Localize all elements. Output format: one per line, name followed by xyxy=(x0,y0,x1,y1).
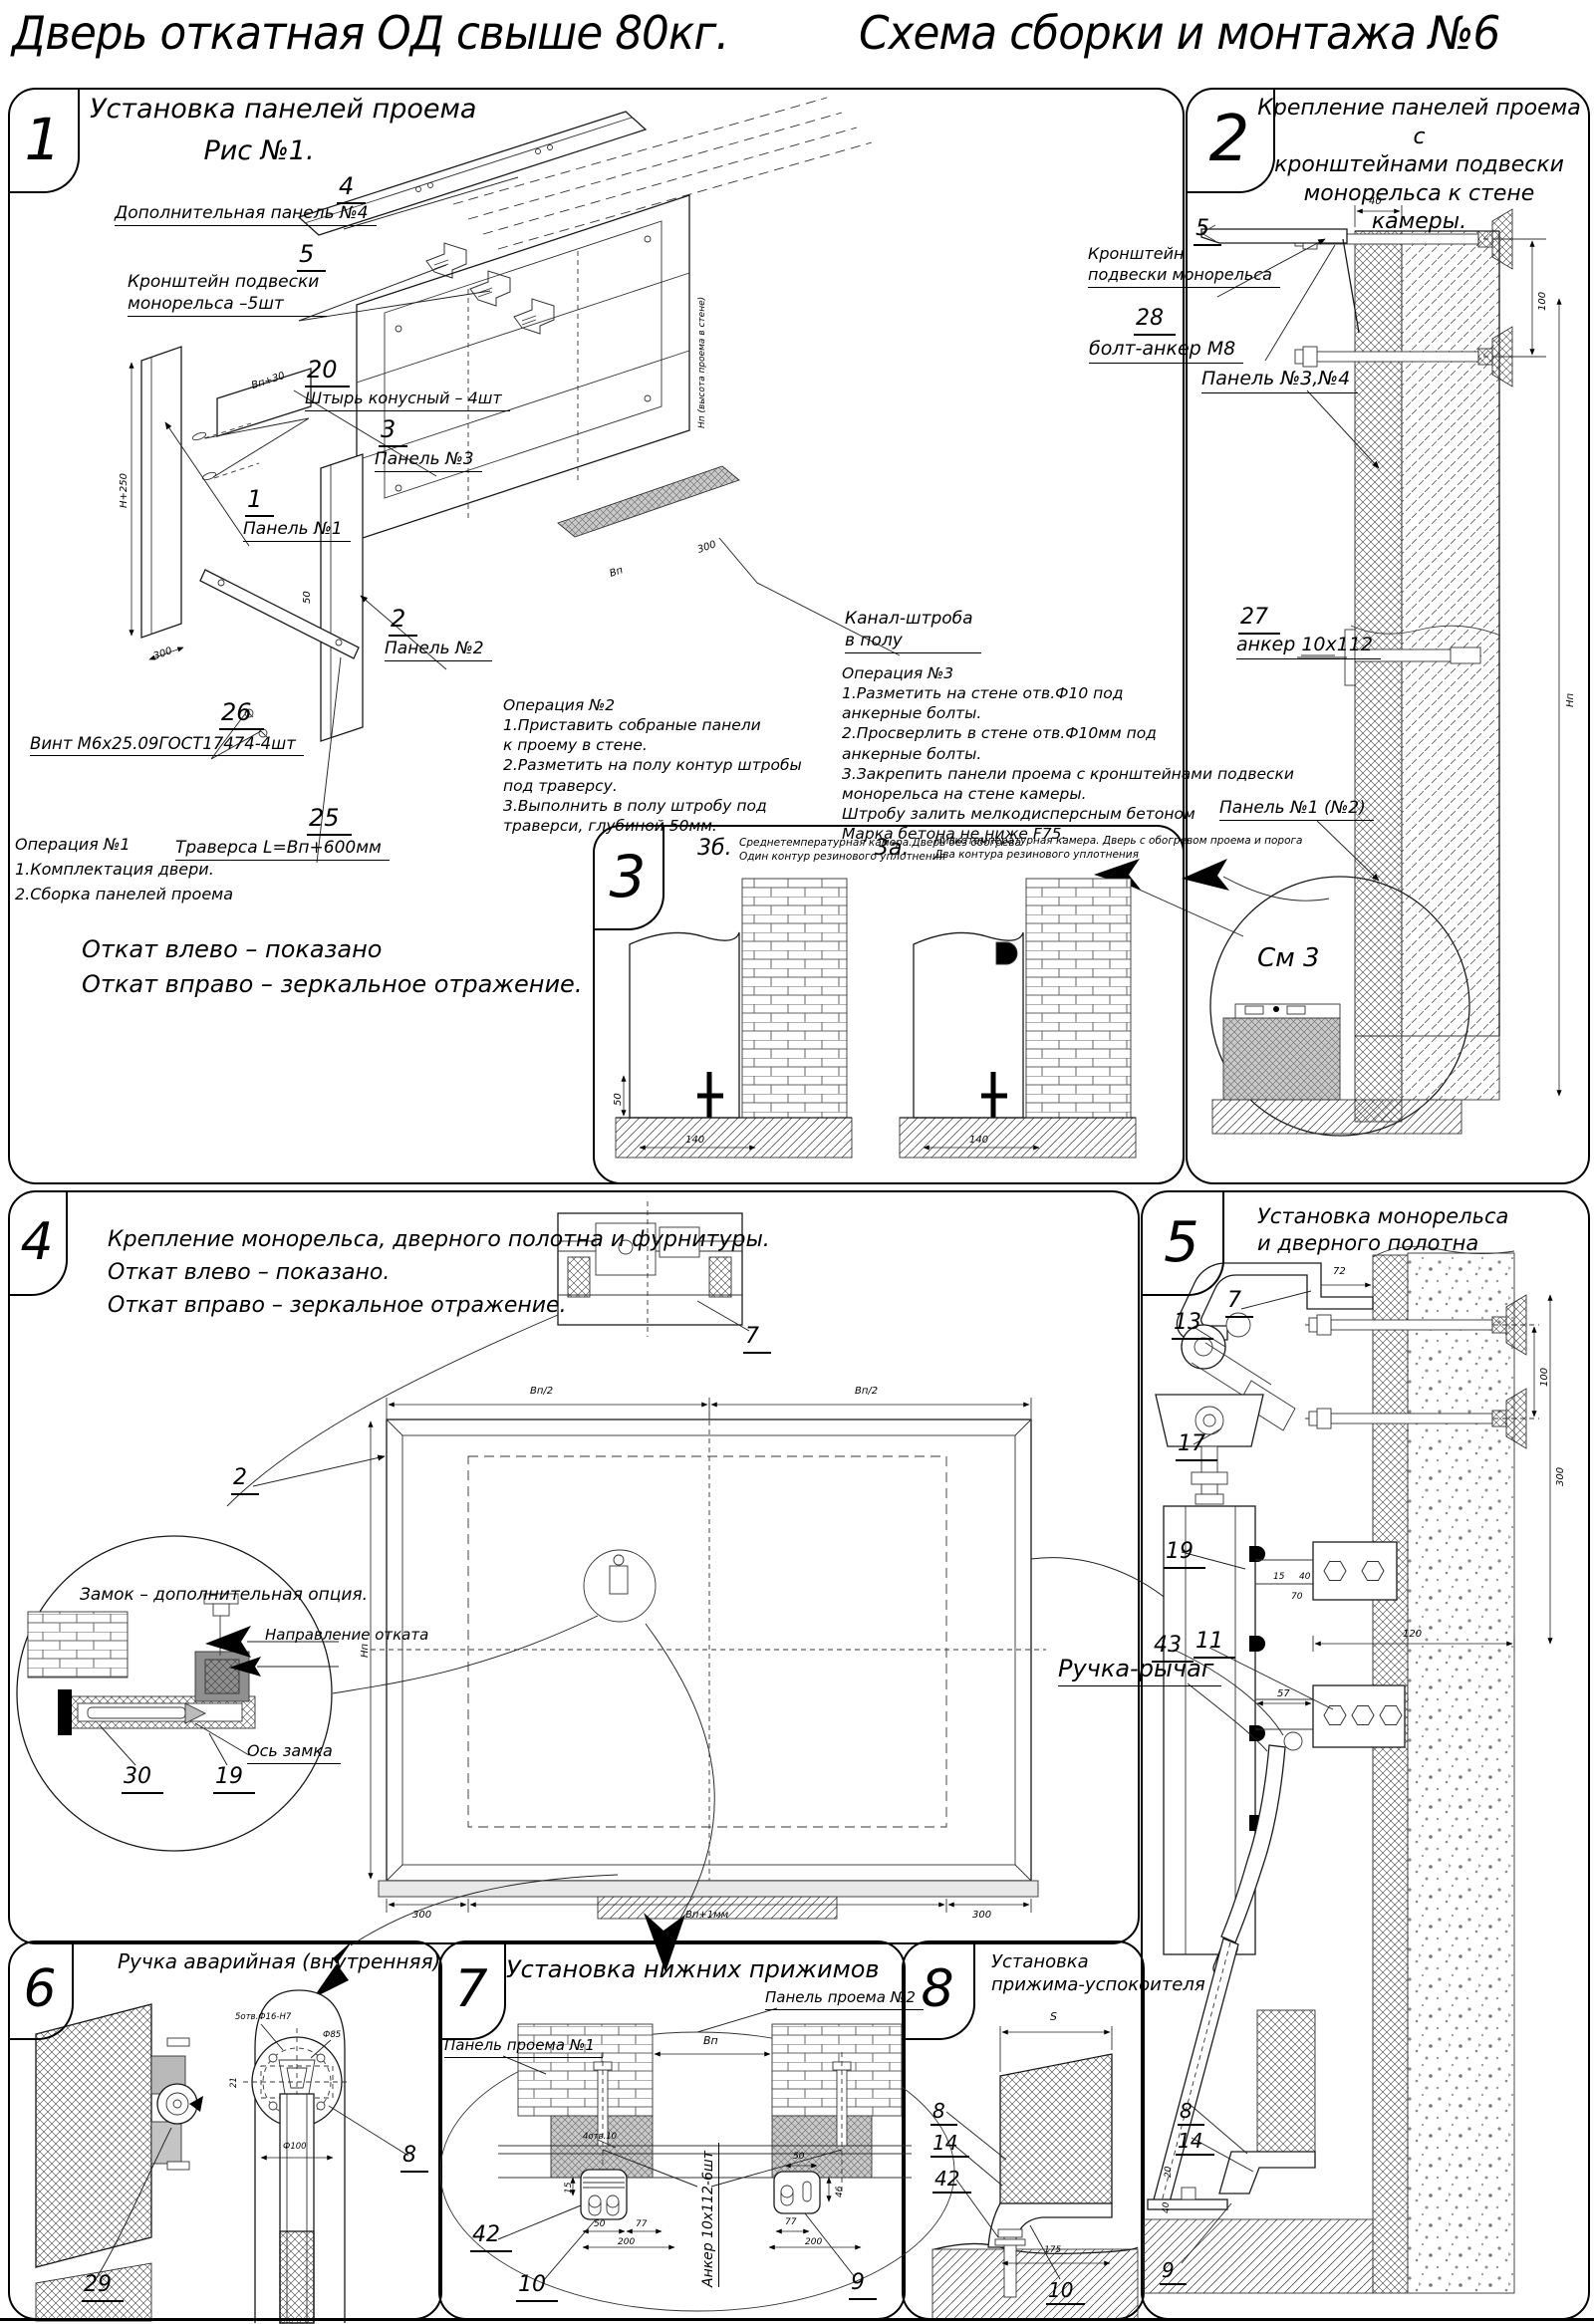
p7-dim-77-left: 77 xyxy=(636,2219,647,2231)
p1-pos-5: 5 xyxy=(297,239,326,272)
p3-sub-a-number: 3а. xyxy=(875,835,909,864)
panel-3-number: 3 xyxy=(593,825,664,930)
p4-pos-7: 7 xyxy=(743,1323,771,1354)
p2-pos-28: 28 xyxy=(1134,305,1176,336)
p1-label-bracket: Кронштейн подвески монорельса –5шт xyxy=(128,271,327,317)
p8-pos-10: 10 xyxy=(1046,2277,1085,2305)
panel-5-number-text: 5 xyxy=(1164,1210,1199,1275)
p4-pos-19: 19 xyxy=(213,1763,255,1794)
p4-dim-np: Нп xyxy=(359,1644,372,1658)
p1-pos-4: 4 xyxy=(337,171,366,204)
p2-dim-100: 100 xyxy=(1536,292,1549,311)
p3-sub-b-number: 3б. xyxy=(697,835,732,864)
panel-2-number-text: 2 xyxy=(1209,103,1250,176)
panel-1-number-text: 1 xyxy=(25,106,62,173)
p7-dim-77-right: 77 xyxy=(785,2217,796,2229)
p4-pos-2: 2 xyxy=(231,1464,259,1495)
p2-dim-40: 40 xyxy=(1369,195,1382,208)
p8-pos-14: 14 xyxy=(930,2130,969,2158)
p1-subtitle: Рис №1. xyxy=(90,133,428,168)
p1-pos-1: 1 xyxy=(245,484,274,517)
p7-pos-10: 10 xyxy=(516,2271,558,2302)
p1-dim-50: 50 xyxy=(301,591,314,604)
p7-dim-200-right: 200 xyxy=(805,2237,822,2249)
p3-dim-50: 50 xyxy=(612,1093,625,1106)
p7-title: Установка нижних прижимов xyxy=(506,1954,880,1985)
p4-dim-vp2-right: Вп/2 xyxy=(855,1385,878,1398)
p1-title: Установка панелей проема xyxy=(90,92,428,127)
p1-pos-2: 2 xyxy=(389,604,417,637)
p1-label-additional-panel: Дополнительная панель №4 xyxy=(115,202,377,226)
p5-dim-72: 72 xyxy=(1333,1265,1346,1278)
p5-dim-57: 57 xyxy=(1277,1687,1290,1700)
p2-label-panel34: Панель №3,№4 xyxy=(1201,367,1358,393)
sheet-title-right: Схема сборки и монтажа №6 xyxy=(859,6,1499,60)
p7-dim-vp: Вп xyxy=(703,2034,718,2048)
p8-dim-175: 175 xyxy=(1044,2245,1061,2257)
p2-pos-5: 5 xyxy=(1194,215,1221,246)
p1-operation-2: Операция №2 1.Приставить собраные панели… xyxy=(503,695,802,836)
p1-label-panel1: Панель №1 xyxy=(243,518,351,542)
p1-pos-26: 26 xyxy=(219,697,264,730)
p1-label-screw: Винт М6х25.09ГОСТ17474-4шт xyxy=(30,733,304,756)
p1-label-panel3: Панель №3 xyxy=(375,448,482,472)
p7-dim-50-right: 50 xyxy=(793,2152,804,2164)
panel-1-number: 1 xyxy=(8,88,80,193)
p8-pos-42: 42 xyxy=(932,2166,971,2194)
p3-sub-a-caption: Низкотемпературная камера. Дверь с обогр… xyxy=(934,835,1302,862)
p2-title: Крепление панелей проема с кронштейнами … xyxy=(1257,95,1581,237)
panel-4-number: 4 xyxy=(8,1190,68,1296)
panel-8-number-text: 8 xyxy=(921,1959,953,2019)
p5-pos-17: 17 xyxy=(1176,1430,1217,1461)
p3-dim-140-left: 140 xyxy=(685,1134,704,1147)
panel-6-number-text: 6 xyxy=(23,1959,56,2019)
p4-direction-label: Направление отката xyxy=(265,1626,428,1646)
panel-3-frame xyxy=(593,825,1185,1184)
p2-label-anchor-bolt: болт-анкер М8 xyxy=(1089,337,1243,364)
p4-dim-300-right: 300 xyxy=(972,1909,991,1922)
p1-dim-np: Нп (высота проема в стене) xyxy=(697,297,709,428)
p4-dim-vp2-left: Вп/2 xyxy=(530,1385,553,1398)
p7-dim-46: 46 xyxy=(835,2187,847,2197)
p8-right-pos-14: 14 xyxy=(1176,2128,1214,2156)
p1-label-pin: Штырь конусный – 4шт xyxy=(305,388,510,411)
p5-title: Установка монорельса и дверного полотна xyxy=(1257,1203,1508,1258)
p4-dim-300-left: 300 xyxy=(412,1909,431,1922)
p3-dim-140-right: 140 xyxy=(969,1134,988,1147)
p5-pos-19: 19 xyxy=(1164,1538,1205,1569)
p5-pos-7: 7 xyxy=(1225,1287,1253,1318)
p5-pos-13: 13 xyxy=(1172,1309,1213,1340)
p5-dim-70: 70 xyxy=(1291,1592,1302,1604)
p4-lock-note: Замок – дополнительная опция. xyxy=(80,1584,368,1606)
p4-title: Крепление монорельса, дверного полотна и… xyxy=(108,1223,770,1322)
p7-dim-200-left: 200 xyxy=(618,2237,635,2249)
p2-label-bracket: Кронштейн подвески монорельса xyxy=(1088,244,1280,288)
p1-label-channel: Канал-штроба в полу xyxy=(845,608,981,653)
p5-handle-label: Ручка-рычаг xyxy=(1058,1654,1221,1686)
sheet-bottom-border xyxy=(0,2318,1594,2321)
p2-pos-27: 27 xyxy=(1238,604,1280,635)
p2-see3-reference: См 3 xyxy=(1257,942,1320,976)
p1-pos-3: 3 xyxy=(379,414,407,447)
p1-label-panel2: Панель №2 xyxy=(385,638,492,661)
panel-4-number-text: 4 xyxy=(20,1212,53,1272)
p5-dim-120: 120 xyxy=(1403,1628,1422,1641)
p1-pos-25: 25 xyxy=(307,803,352,836)
p7-pos-42: 42 xyxy=(470,2221,512,2252)
p6-pos-29: 29 xyxy=(82,2271,124,2302)
p4-lock-axis: Ось замка xyxy=(247,1741,341,1764)
p1-slide-note: Откат влево – показано Откат вправо – зе… xyxy=(82,932,582,1002)
p8-dim-40: 40 xyxy=(1162,2202,1174,2213)
p8-pos-8: 8 xyxy=(930,2098,957,2126)
panel-5-number: 5 xyxy=(1141,1190,1224,1296)
sheet-title-left: Дверь откатная ОД свыше 80кг. xyxy=(12,6,728,60)
p4-pos-30: 30 xyxy=(122,1763,163,1794)
p8-dim-20: 20 xyxy=(1164,2167,1176,2178)
p5-dim-40: 40 xyxy=(1299,1572,1310,1584)
p6-title: Ручка аварийная (внутренняя) xyxy=(118,1948,440,1974)
p8-right-pos-9: 9 xyxy=(1160,2257,1187,2285)
panel-6-number: 6 xyxy=(8,1940,74,2040)
p5-dim-100: 100 xyxy=(1538,1368,1551,1387)
p7-pos-9: 9 xyxy=(849,2269,877,2300)
p2-label-anchor: анкер 10х112 xyxy=(1236,633,1381,659)
p7-dim-50-left: 50 xyxy=(594,2219,605,2231)
drawing-sheet: Дверь откатная ОД свыше 80кг. Схема сбор… xyxy=(0,0,1594,2324)
p1-operation-1: Операция №1 1.Комплектация двери. 2.Сбор… xyxy=(15,833,233,906)
p5-dim-15: 15 xyxy=(1273,1572,1284,1584)
p7-anchor-note: Анкер 10х112-6шт xyxy=(699,2143,719,2287)
panel-7-number-text: 7 xyxy=(454,1959,487,2019)
p6-dim-f100: Ф100 xyxy=(283,2142,307,2153)
p1-pos-20: 20 xyxy=(305,355,350,387)
p8-right-pos-8: 8 xyxy=(1178,2098,1204,2126)
p5-dim-300: 300 xyxy=(1554,1467,1567,1486)
p7-opening-panel1: Панель проема №1 xyxy=(444,2036,603,2058)
p2-label-panel12: Панель №1 (№2) xyxy=(1219,797,1374,821)
p8-title: Установка прижима-успокоителя xyxy=(991,1950,1205,1997)
p6-dim-21: 21 xyxy=(229,2077,240,2088)
p6-dim-bolt-holes: 5отв.Ф16-Н7 xyxy=(235,2012,291,2023)
panel-7-number: 7 xyxy=(438,1940,506,2040)
p6-pos-8: 8 xyxy=(400,2142,428,2173)
p8-dim-s: S xyxy=(1050,2010,1057,2024)
panel-3-number-text: 3 xyxy=(610,843,647,910)
p7-opening-panel2: Панель проема №2 xyxy=(765,1988,924,2010)
p7-dim-15: 15 xyxy=(564,2183,576,2194)
p6-dim-f85: Ф85 xyxy=(323,2030,341,2041)
p7-dim-holes: 4отв.10 xyxy=(583,2132,617,2143)
p1-dim-h250: Н+250 xyxy=(118,473,131,508)
p4-dim-vp-center: Вп+1мм xyxy=(685,1909,728,1922)
p2-dim-np: Нп xyxy=(1564,693,1577,707)
